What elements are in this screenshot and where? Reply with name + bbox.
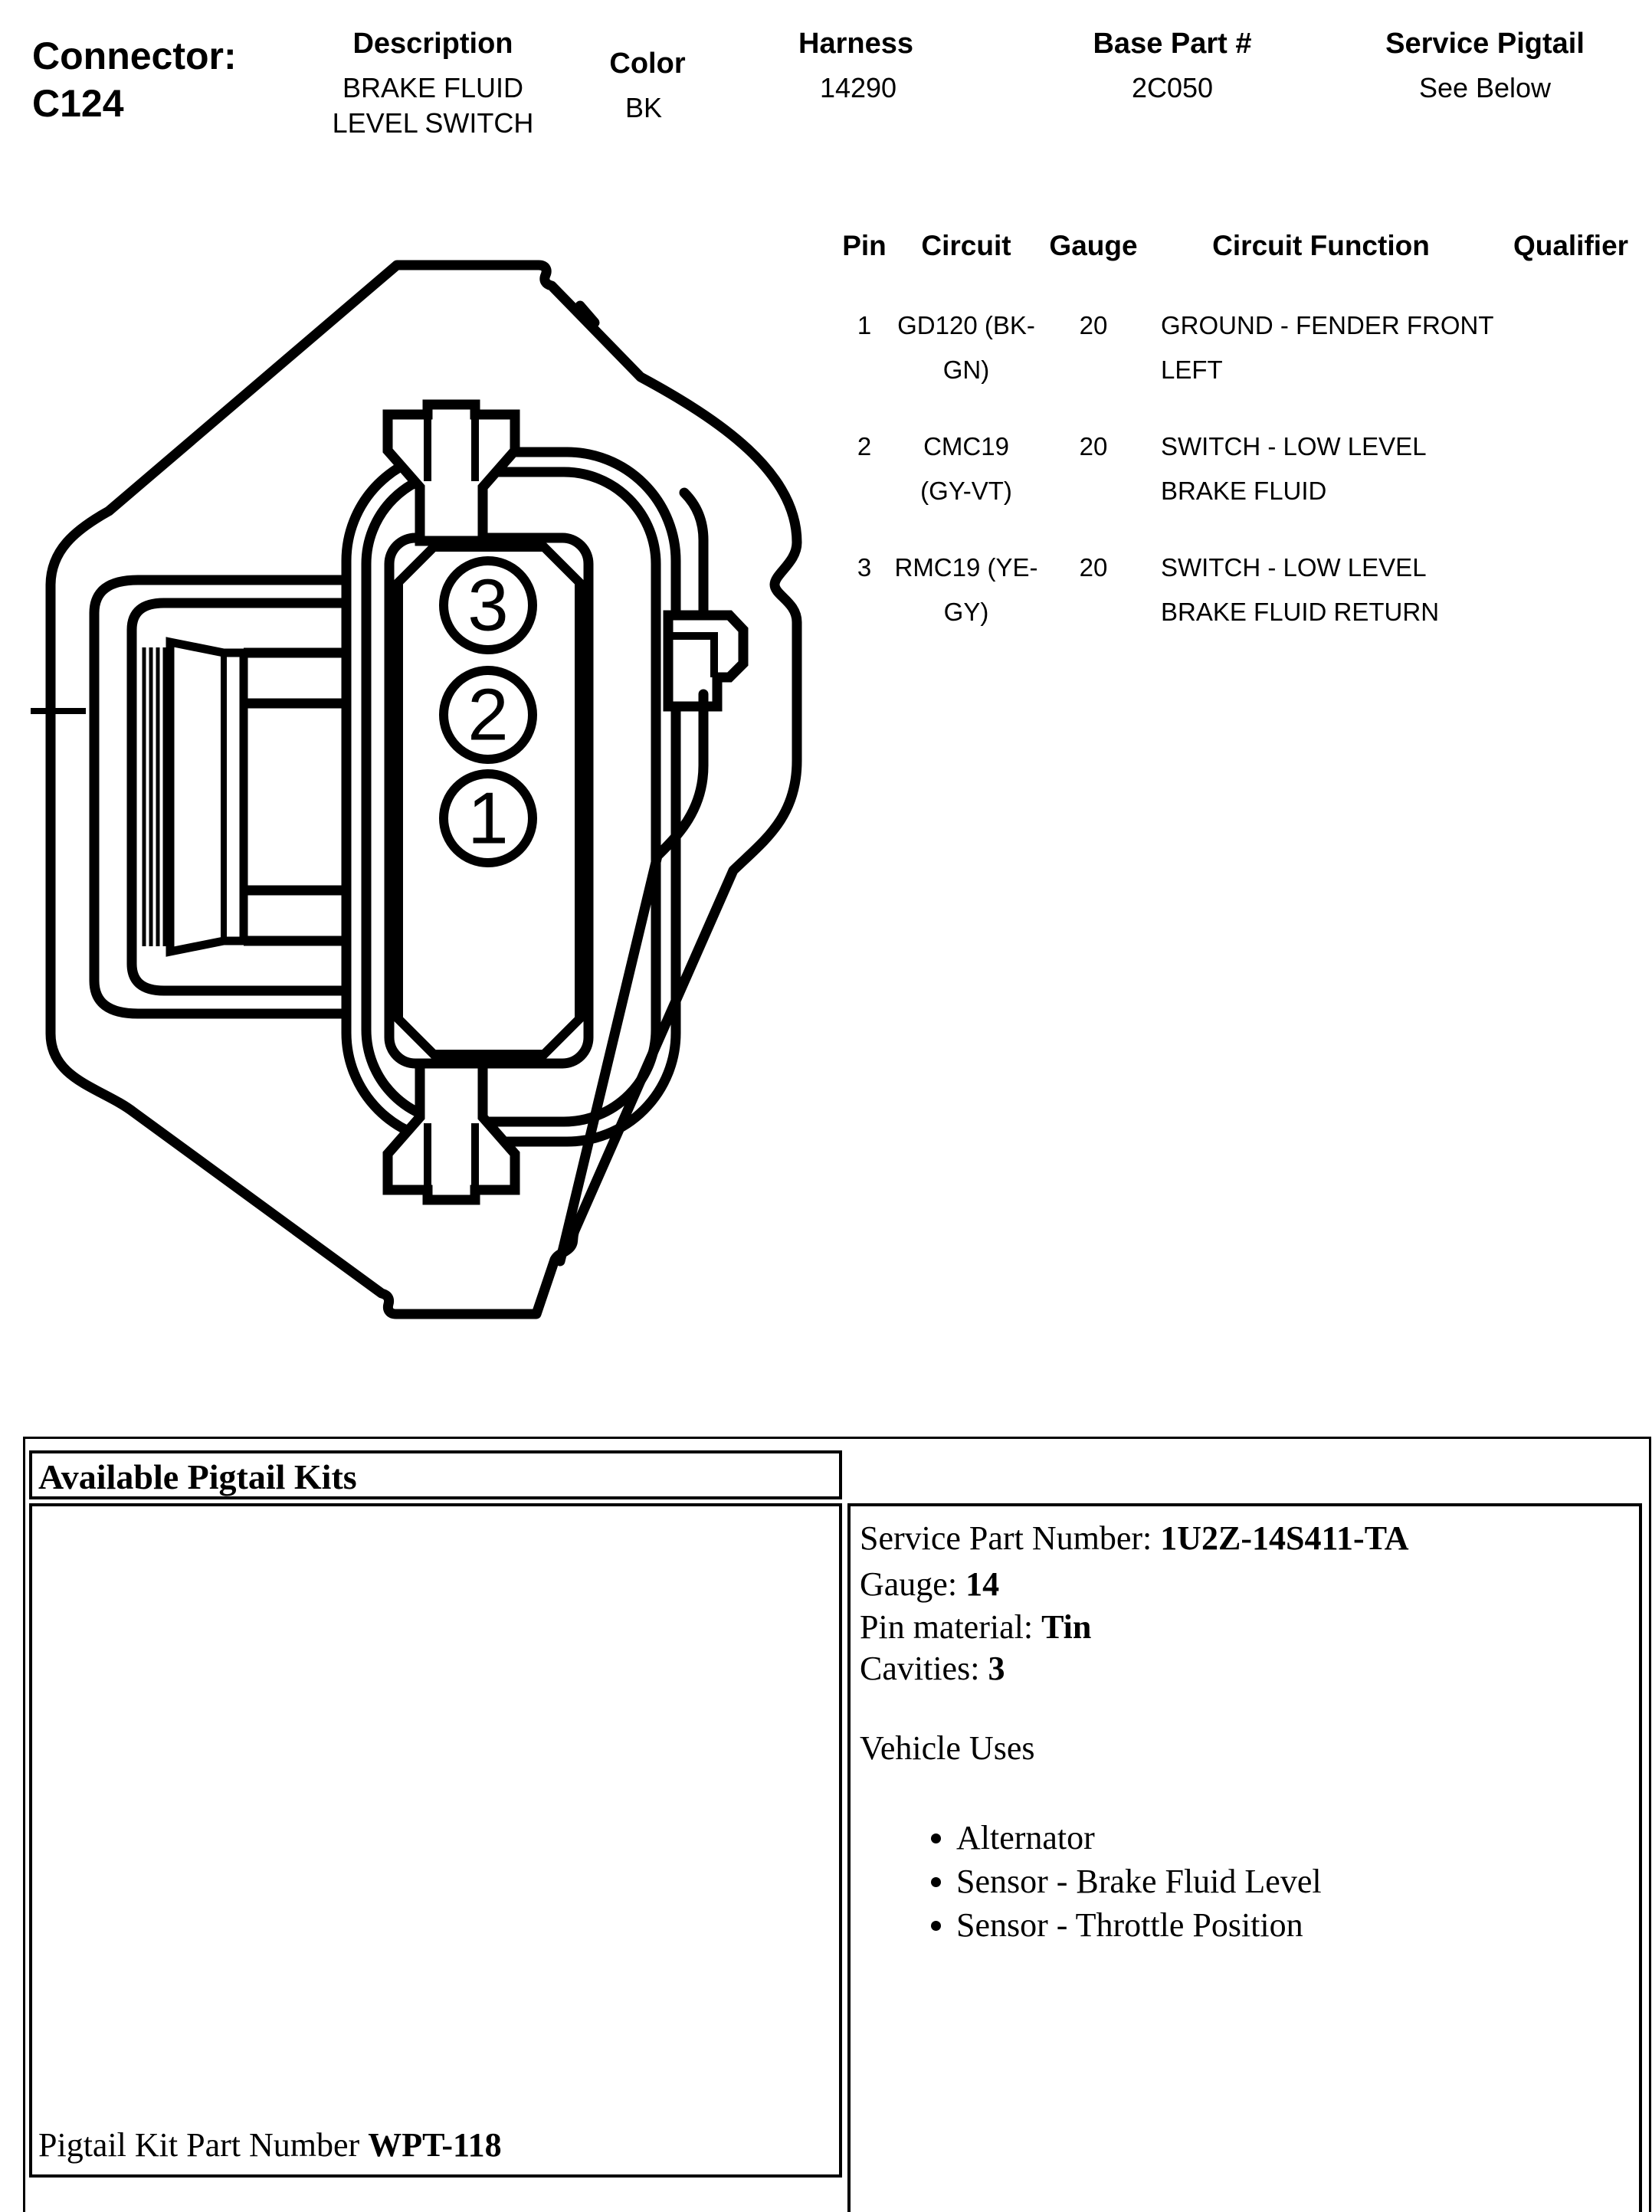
bottom-index-tab (388, 1063, 515, 1200)
pin-row-1-function-line2: LEFT (1161, 348, 1493, 392)
pin-material-line: Pin material: Tin (860, 1607, 1091, 1647)
pin-row-2-circuit-line1: CMC19 (920, 424, 1012, 469)
description-value-line1: BRAKE FLUID (343, 72, 523, 104)
gauge-label: Gauge: (860, 1565, 965, 1603)
gauge-line: Gauge: 14 (860, 1565, 999, 1604)
description-value-line2: LEVEL SWITCH (333, 107, 534, 139)
cavities-label: Cavities: (860, 1650, 988, 1687)
pigtail-kit-part-number-label: Pigtail Kit Part Number (38, 2126, 368, 2164)
base-part-value: 2C050 (1132, 72, 1213, 104)
pigtail-kit-part-number-value: WPT-118 (368, 2126, 501, 2164)
vehicle-uses-list: Alternator Sensor - Brake Fluid Level Se… (907, 1816, 1322, 1947)
pin-table-header-circuit: Circuit (921, 230, 1011, 262)
connector-label: Connector: (32, 34, 237, 78)
pin-label-3: 3 (467, 565, 508, 647)
latch-connector-lines (244, 653, 346, 941)
pin-row-2-function-line2: BRAKE FLUID (1161, 469, 1427, 513)
pin-row-2-circuit-line2: (GY-VT) (920, 469, 1012, 513)
pin-row-3-function-line2: BRAKE FLUID RETURN (1161, 590, 1439, 634)
pin-row-3-pin: 3 (857, 546, 871, 590)
pigtail-kit-box: Pigtail Kit Part Number WPT-118 (29, 1503, 842, 2178)
service-part-box: Service Part Number: 1U2Z-14S411-TA Gaug… (847, 1503, 1642, 2212)
latch-hatch-lines (144, 647, 165, 946)
base-part-column-header: Base Part # (1093, 28, 1251, 61)
service-part-number-line: Service Part Number: 1U2Z-14S411-TA (860, 1519, 1409, 1558)
pin-table-header-pin: Pin (842, 230, 887, 262)
top-index-tab (388, 405, 515, 541)
connector-face-diagram: 3 2 1 (23, 253, 843, 1341)
pin-table-header-qualifier: Qualifier (1513, 230, 1628, 262)
color-value: BK (625, 92, 662, 124)
pin-row-3-circuit-line2: GY) (894, 590, 1037, 634)
cavities-line: Cavities: 3 (860, 1649, 1005, 1688)
pin-row-1-pin: 1 (857, 303, 871, 348)
gauge-value: 14 (965, 1565, 999, 1603)
pin-row-1-circuit: GD120 (BK- GN) (897, 303, 1035, 392)
pin-row-2-function-line1: SWITCH - LOW LEVEL (1161, 424, 1427, 469)
pin-label-2: 2 (467, 674, 508, 756)
pin-row-1-function: GROUND - FENDER FRONT LEFT (1161, 303, 1493, 392)
shell-inner-line-upper-right (684, 493, 703, 612)
connector-id: C124 (32, 81, 124, 126)
pigtail-kits-header-box: Available Pigtail Kits (29, 1450, 842, 1499)
pigtail-kits-title: Available Pigtail Kits (32, 1453, 839, 1497)
color-column-header: Color (609, 48, 685, 80)
harness-value: 14290 (820, 72, 896, 104)
service-pigtail-column-header: Service Pigtail (1385, 28, 1585, 61)
description-column-header: Description (352, 28, 513, 61)
pin-row-1-function-line1: GROUND - FENDER FRONT (1161, 303, 1493, 348)
vehicle-use-throttle-sensor: Sensor - Throttle Position (956, 1903, 1322, 1947)
latch-lever (170, 642, 244, 952)
pin-row-3-circuit: RMC19 (YE- GY) (894, 546, 1037, 634)
vehicle-use-brake-fluid-sensor: Sensor - Brake Fluid Level (956, 1860, 1322, 1903)
pin-row-1-circuit-line1: GD120 (BK- (897, 303, 1035, 348)
cavities-value: 3 (988, 1650, 1005, 1687)
pin-material-label: Pin material: (860, 1608, 1041, 1646)
vehicle-use-alternator: Alternator (956, 1816, 1322, 1860)
service-pigtail-value: See Below (1419, 72, 1551, 104)
pin-row-3-function: SWITCH - LOW LEVEL BRAKE FLUID RETURN (1161, 546, 1439, 634)
vehicle-uses-title: Vehicle Uses (860, 1729, 1035, 1768)
pin-row-1-gauge: 20 (1080, 303, 1108, 348)
pin-row-3-function-line1: SWITCH - LOW LEVEL (1161, 546, 1439, 590)
pin-table-header-function: Circuit Function (1212, 230, 1430, 262)
pin-row-3-gauge: 20 (1080, 546, 1108, 590)
connector-spec-page: Connector: C124 Description BRAKE FLUID … (0, 0, 1652, 2212)
pin-row-3-circuit-line1: RMC19 (YE- (894, 546, 1037, 590)
pin-row-1-circuit-line2: GN) (897, 348, 1035, 392)
pin-label-1: 1 (467, 778, 508, 860)
pin-material-value: Tin (1041, 1608, 1091, 1646)
pin-row-2-gauge: 20 (1080, 424, 1108, 469)
pin-row-2-circuit: CMC19 (GY-VT) (920, 424, 1012, 513)
pin-row-2-pin: 2 (857, 424, 871, 469)
service-part-number-label: Service Part Number: (860, 1519, 1160, 1557)
pin-table-header-gauge: Gauge (1049, 230, 1137, 262)
service-part-number-value: 1U2Z-14S411-TA (1160, 1519, 1408, 1557)
pin-row-2-function: SWITCH - LOW LEVEL BRAKE FLUID (1161, 424, 1427, 513)
harness-column-header: Harness (798, 28, 913, 61)
pigtail-kit-part-number-line: Pigtail Kit Part Number WPT-118 (38, 2125, 502, 2164)
